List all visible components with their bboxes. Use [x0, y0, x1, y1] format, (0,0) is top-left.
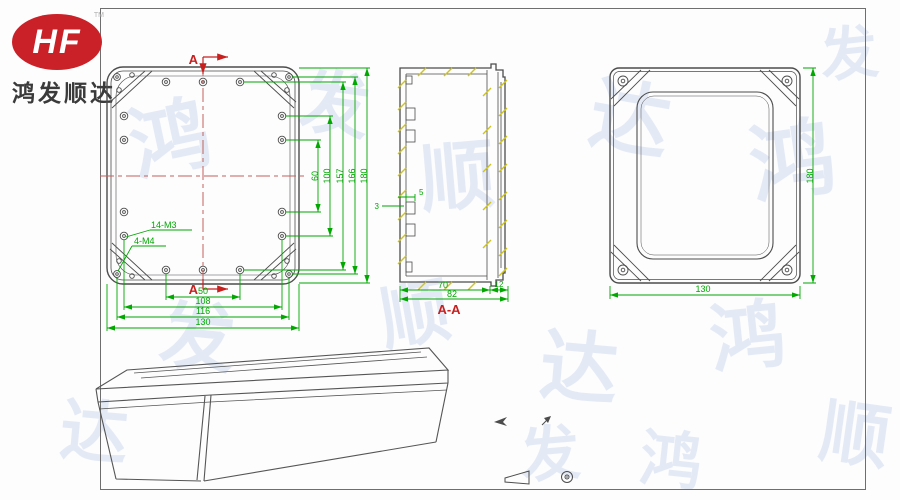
dim-157: 157	[335, 168, 345, 183]
dim-130-back: 130	[695, 284, 710, 294]
dim-180-front: 180	[359, 168, 369, 183]
front-dimensions	[107, 68, 370, 331]
dim-166: 166	[347, 168, 357, 183]
hatch-ticks	[398, 68, 507, 290]
section-label-top: A	[189, 52, 199, 67]
dim-boss-5: 5	[419, 188, 424, 197]
mounting-ears	[611, 70, 799, 281]
target-circle-icon	[562, 472, 573, 483]
dim-boss-3: 3	[375, 202, 380, 211]
projection-symbol	[494, 416, 573, 484]
dim-50: 50	[198, 286, 208, 296]
centerlines	[100, 62, 305, 290]
dim-116: 116	[196, 306, 210, 316]
frustum-icon	[505, 471, 529, 484]
section-cut-marks	[203, 57, 228, 289]
thread-label-m3: 14-M3	[151, 220, 177, 230]
dim-100: 100	[322, 168, 332, 183]
dim-180-back: 180	[805, 168, 815, 183]
isometric-view	[96, 348, 448, 481]
dim-12: 12	[495, 280, 504, 289]
section-view	[398, 64, 507, 290]
thread-label-m4: 4-M4	[134, 236, 155, 246]
section-title: A-A	[437, 302, 461, 317]
back-view	[610, 68, 800, 283]
dim-108: 108	[195, 296, 210, 306]
dim-130-front: 130	[195, 317, 210, 327]
screw-bosses	[406, 76, 415, 272]
view-arrow-icon	[494, 417, 507, 426]
dim-82: 82	[447, 289, 457, 299]
dim-60: 60	[310, 171, 320, 181]
cad-drawing-canvas: A A 60 100 157 166 180 50 108 116 130 14…	[0, 0, 900, 500]
